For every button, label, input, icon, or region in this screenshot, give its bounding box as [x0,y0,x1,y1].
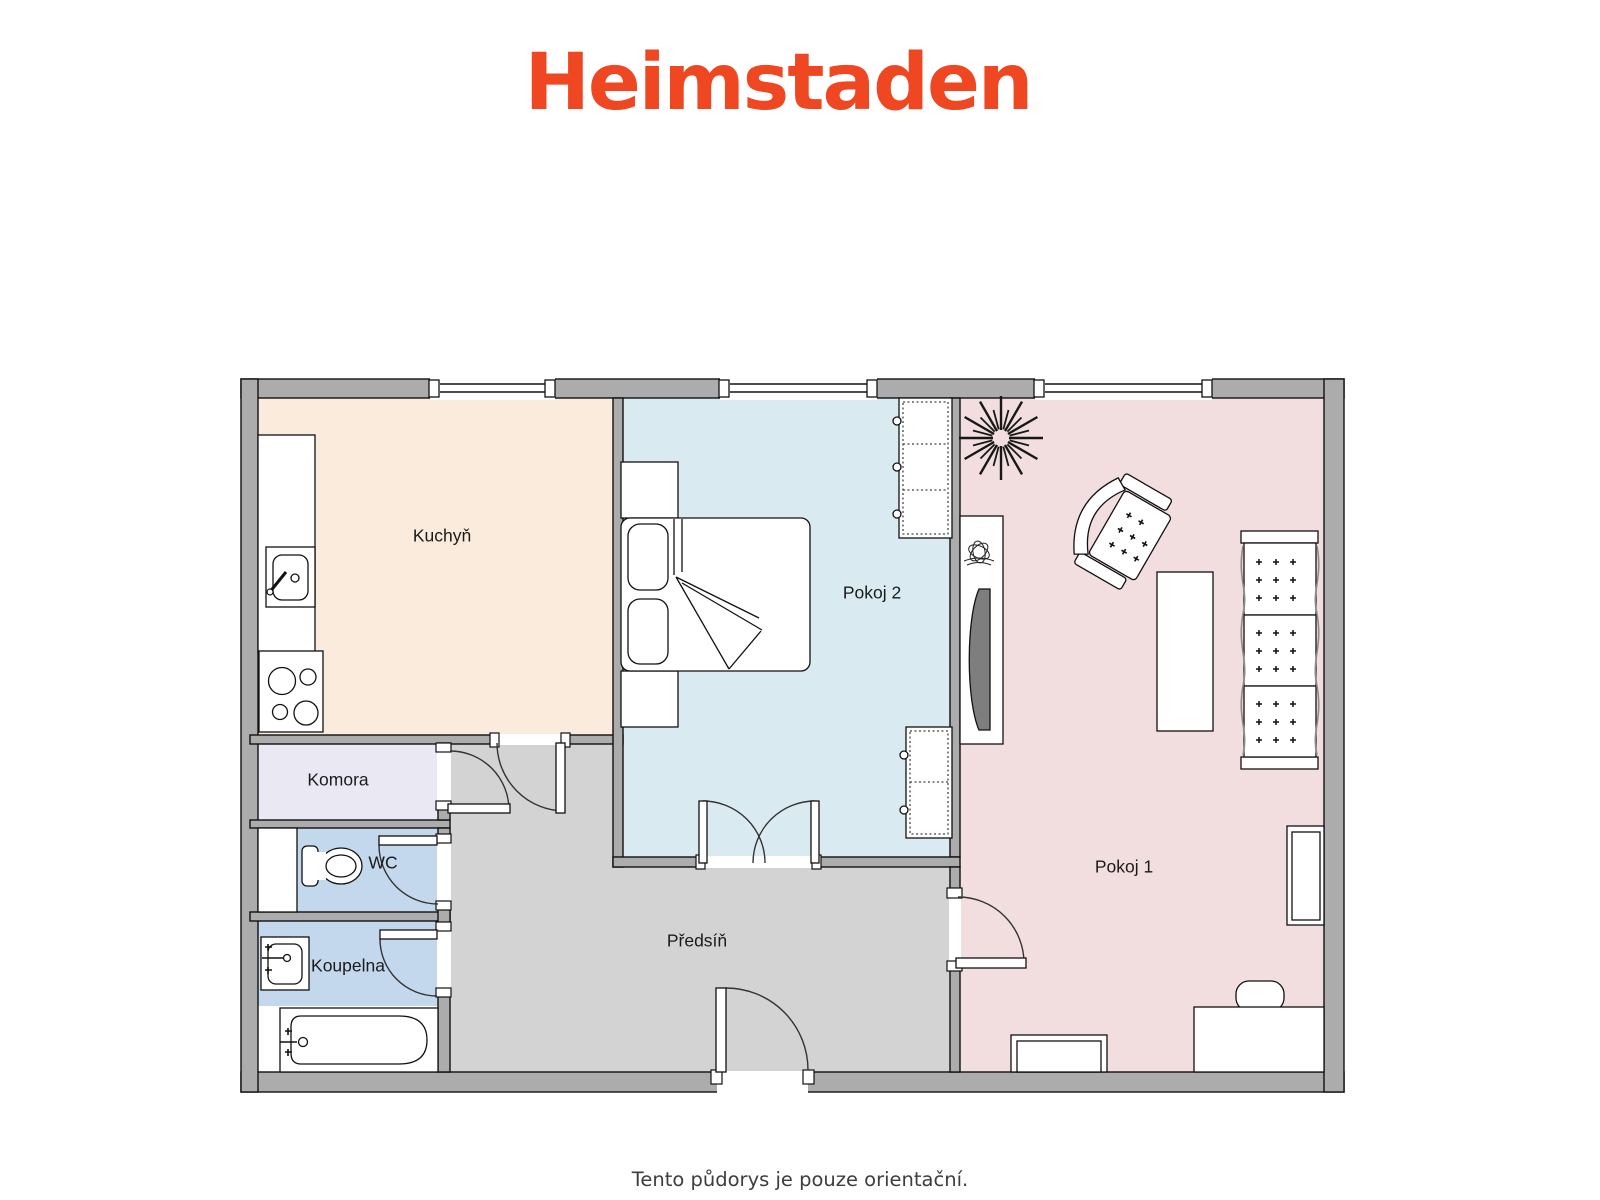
toilet [302,846,362,886]
kitchen-counter [258,435,315,652]
label-wc: WC [368,853,397,874]
wardrobe-top [893,398,952,538]
caption: Tento půdorys je pouze orientační. [0,1168,1600,1191]
label-kuchyn: Kuchyň [413,526,471,547]
bathtub [280,1008,438,1072]
wardrobe-bottom [900,727,952,838]
kitchen-sink [266,547,315,607]
coffee-table [1157,572,1213,731]
label-pokoj2: Pokoj 2 [843,583,901,604]
nightstand-top [621,462,678,518]
window-2 [719,377,877,400]
tv-screen [969,589,990,730]
label-komora: Komora [307,770,368,791]
kitchen-furniture [258,435,323,732]
window-3 [1034,377,1212,400]
page: Heimstaden [0,0,1600,1200]
label-predsin: Předsíň [667,931,727,952]
nightstand-bottom [621,671,678,727]
floorplan [0,0,1600,1200]
tv-cabinet [960,516,1003,744]
kitchen-stove [259,651,323,732]
dresser [1011,1035,1107,1072]
sofa [1241,531,1319,769]
bathroom-sink [261,937,309,990]
label-pokoj1: Pokoj 1 [1095,857,1153,878]
shaft [258,828,297,912]
label-koupelna: Koupelna [311,956,385,977]
window-1 [429,377,555,400]
desk [1194,1007,1324,1072]
windows [429,377,1212,400]
double-bed [621,518,810,671]
wall-shelf [1287,826,1324,925]
